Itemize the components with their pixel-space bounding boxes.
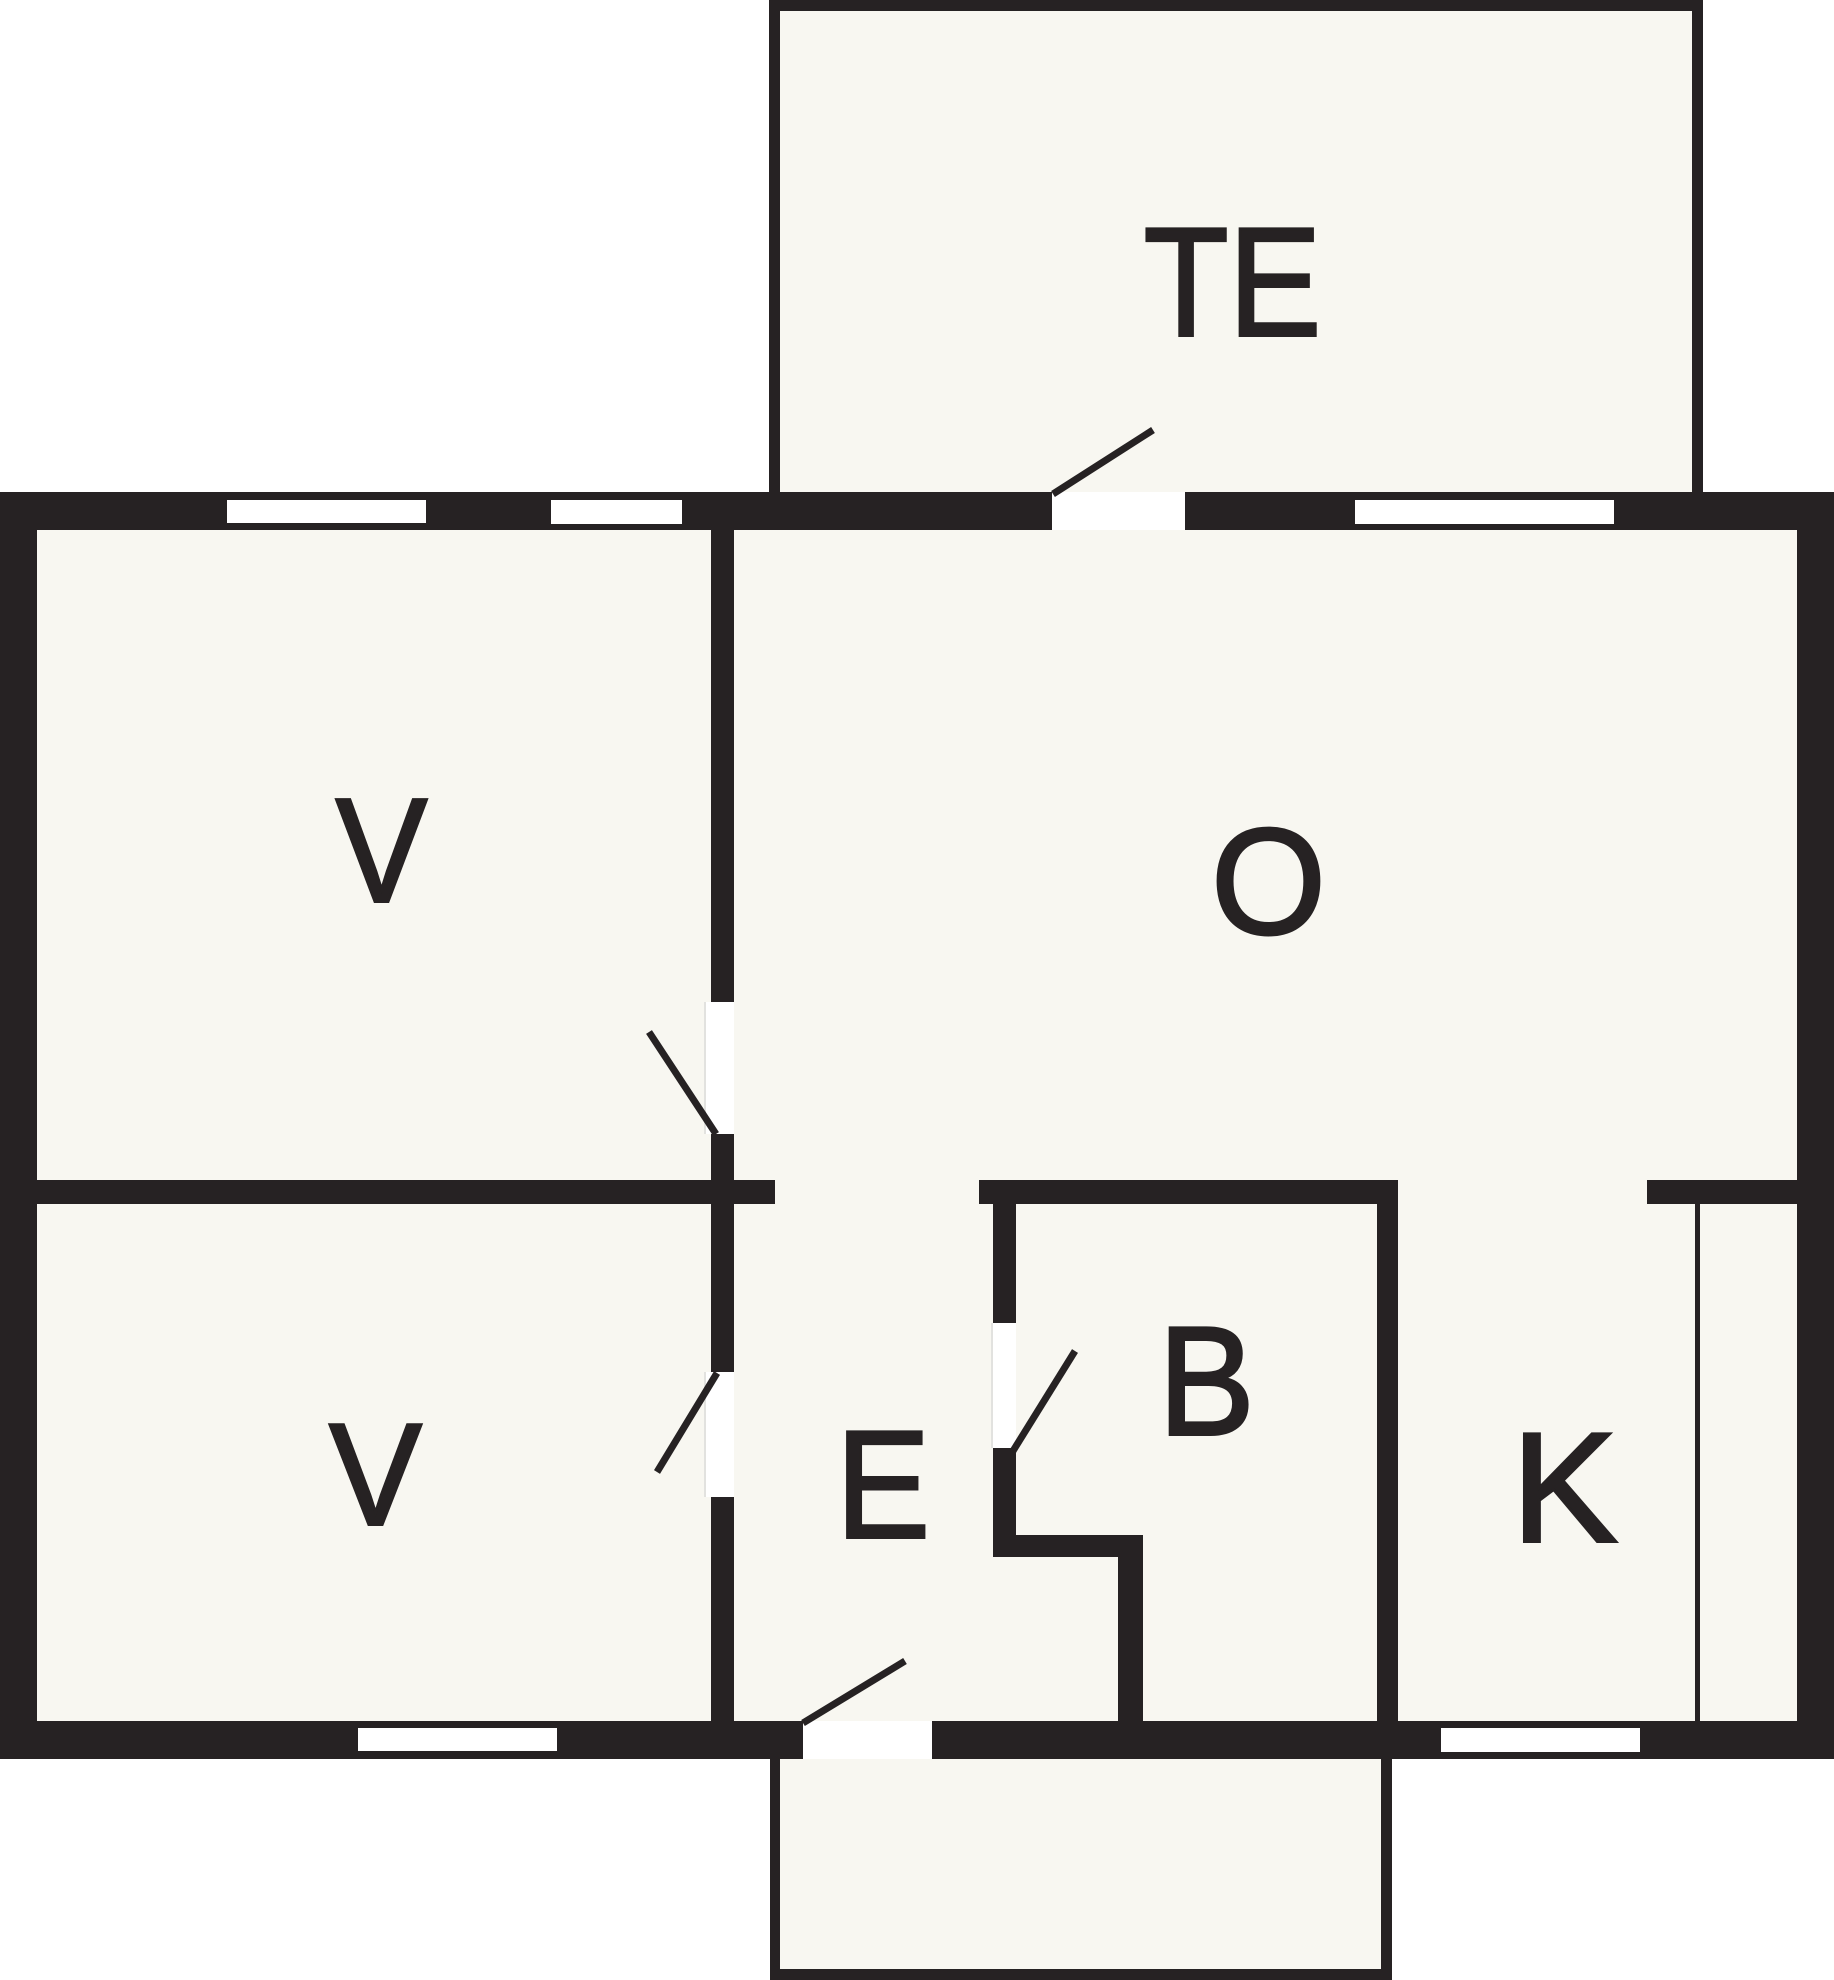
svg-text:V: V	[329, 1395, 421, 1557]
svg-text:O: O	[1211, 797, 1326, 966]
svg-text:B: B	[1158, 1294, 1255, 1468]
svg-text:V: V	[336, 769, 427, 934]
svg-text:TE: TE	[1144, 197, 1322, 370]
svg-text:K: K	[1511, 1401, 1617, 1576]
svg-text:E: E	[836, 1399, 930, 1571]
